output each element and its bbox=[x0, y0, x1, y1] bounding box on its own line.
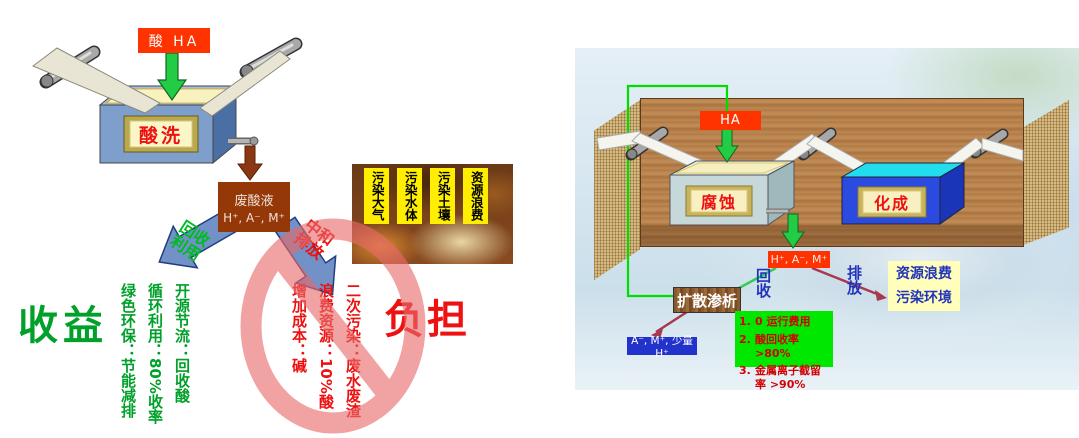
benefit-row: 1. 0 运行费用 bbox=[739, 315, 829, 329]
waste-outlet-pipe bbox=[228, 137, 258, 145]
benefit-text: 金属离子截留率 >90% bbox=[755, 364, 829, 392]
recycle-label: 回收 bbox=[755, 268, 770, 298]
corrosion-tank-label: 腐蚀 bbox=[687, 188, 751, 214]
burden-item: 浪费资源：10%酸 bbox=[318, 283, 333, 409]
benefit-text: 0 运行费用 bbox=[755, 315, 810, 329]
burden-list: 增加成本：碱 浪费资源：10%酸 二次污染：废水废渣 bbox=[291, 283, 360, 418]
recovered-ions-box: A⁻, M⁺, 少量H⁺ bbox=[627, 337, 697, 355]
benefit-num: 3. bbox=[739, 364, 755, 392]
acid-ha-text: 酸 HA bbox=[149, 31, 200, 51]
benefit-num: 2. bbox=[739, 333, 755, 361]
acid-ha-label: 酸 HA bbox=[138, 28, 210, 53]
waste-ions-label: H⁺, A⁻, M⁺ bbox=[768, 251, 830, 268]
benefit-item: 循环利用：80%收率 bbox=[147, 283, 162, 424]
waste-out-arrow bbox=[782, 214, 804, 248]
dialysis-box: 扩散渗析 bbox=[673, 287, 741, 313]
benefit-row: 2. 酸回收率 >80% bbox=[739, 333, 829, 361]
formation-tank-label: 化成 bbox=[859, 189, 925, 215]
waste-down-arrow bbox=[238, 146, 262, 180]
dialysis-benefits-box: 1. 0 运行费用 2. 酸回收率 >80% 3. 金属离子截留率 >90% bbox=[735, 311, 833, 367]
burden-item: 二次污染：废水废渣 bbox=[345, 283, 360, 418]
benefit-row: 3. 金属离子截留率 >90% bbox=[739, 364, 829, 392]
burden-item: 增加成本：碱 bbox=[291, 283, 306, 373]
benefit-num: 1. bbox=[739, 315, 755, 329]
waste-acid-box: 废酸液 H⁺, A⁻, M⁺ bbox=[218, 182, 290, 232]
burden-title: 负担 bbox=[384, 300, 470, 340]
pickling-tank-label: 酸洗 bbox=[130, 120, 192, 148]
ha-label: HA bbox=[700, 111, 761, 130]
benefit-text: 酸回收率 >80% bbox=[755, 333, 829, 361]
warning-box: 资源浪费 污染环境 bbox=[888, 261, 960, 311]
waste-acid-line1: 废酸液 bbox=[218, 190, 290, 209]
ha-feed-arrow bbox=[716, 128, 738, 162]
benefit-title: 收益 bbox=[18, 306, 108, 346]
discharge-label: 排放 bbox=[846, 265, 861, 295]
benefit-item: 开源节流：回收酸 bbox=[174, 283, 189, 403]
waste-acid-line2: H⁺, A⁻, M⁺ bbox=[218, 211, 290, 225]
benefit-list: 开源节流：回收酸 循环利用：80%收率 绿色环保：节能减排 bbox=[120, 283, 189, 424]
warning-line2: 污染环境 bbox=[896, 286, 952, 311]
benefit-item: 绿色环保：节能减排 bbox=[120, 283, 135, 418]
slide: 污染大气 污染水体 污染土壤 资源浪费 bbox=[0, 0, 1079, 438]
warning-line1: 资源浪费 bbox=[896, 262, 952, 287]
